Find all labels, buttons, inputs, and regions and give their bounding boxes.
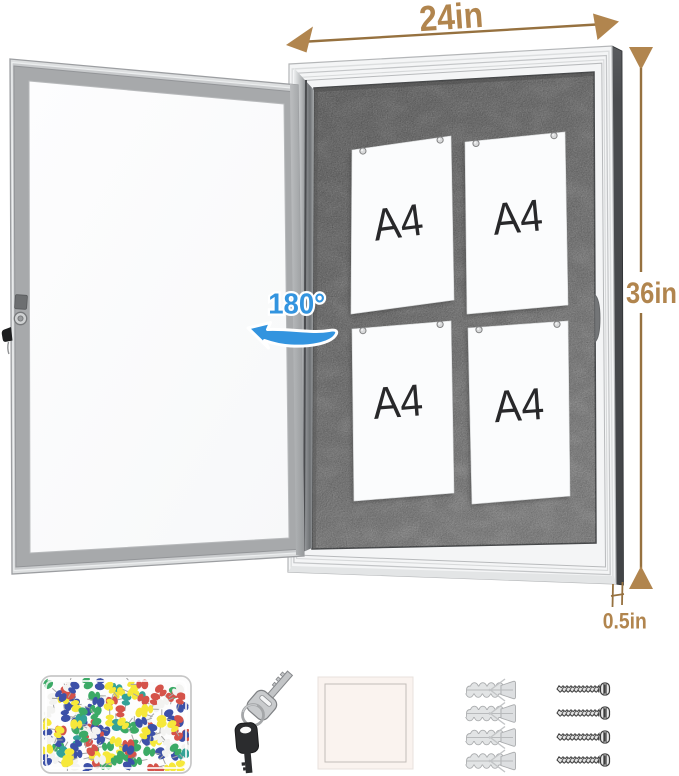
svg-text:24in: 24in (418, 0, 485, 39)
svg-text:36in: 36in (626, 277, 677, 310)
svg-text:A4: A4 (492, 378, 545, 432)
svg-text:0.5in: 0.5in (603, 609, 647, 634)
svg-text:A4: A4 (370, 194, 426, 251)
svg-text:A4: A4 (371, 374, 425, 429)
svg-text:180°: 180° (268, 289, 325, 321)
svg-text:A4: A4 (490, 189, 545, 245)
